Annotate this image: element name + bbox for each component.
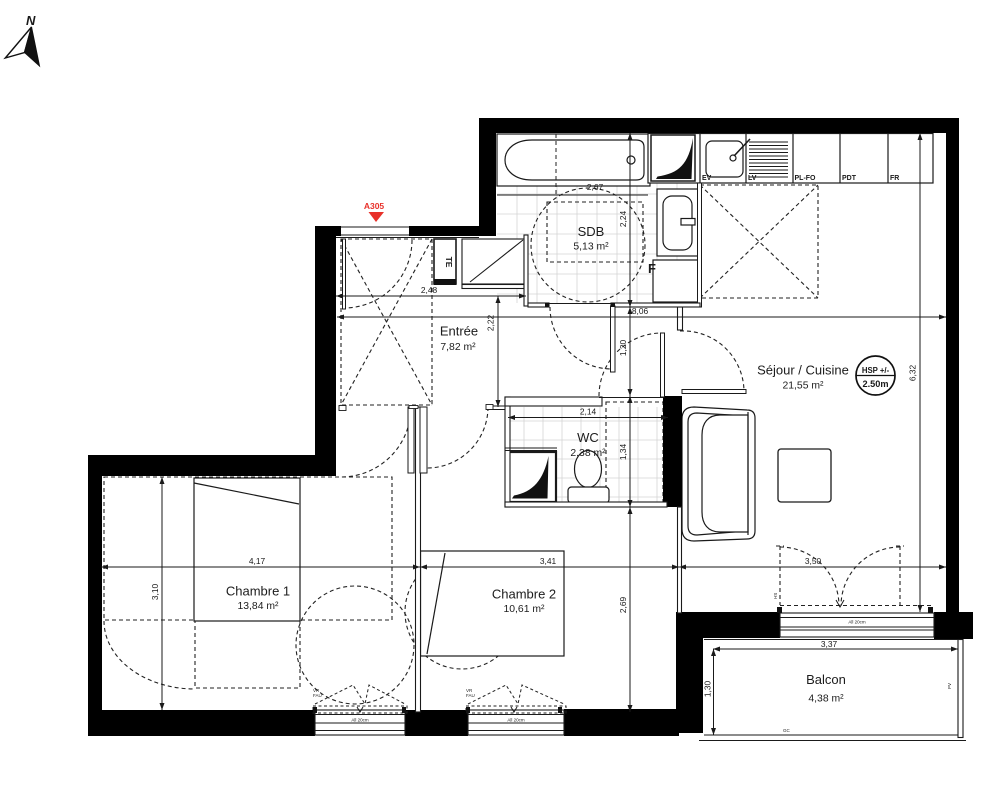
svg-text:GC: GC <box>783 728 791 733</box>
svg-text:Chambre 2: Chambre 2 <box>492 587 556 602</box>
svg-text:3,41: 3,41 <box>540 556 557 566</box>
svg-text:Séjour / Cuisine: Séjour / Cuisine <box>757 363 849 378</box>
svg-text:PL-FO: PL-FO <box>795 175 817 182</box>
svg-text:Balcon: Balcon <box>806 672 846 687</box>
svg-text:1,20: 1,20 <box>618 340 628 357</box>
svg-text:2,48: 2,48 <box>421 285 438 295</box>
svg-text:1,34: 1,34 <box>618 444 628 461</box>
svg-text:Chambre 1: Chambre 1 <box>226 584 290 599</box>
svg-text:LV: LV <box>748 175 757 182</box>
svg-text:HSP +/-: HSP +/- <box>862 366 890 375</box>
svg-text:6,32: 6,32 <box>908 365 918 382</box>
svg-text:2,38 m²: 2,38 m² <box>570 448 606 459</box>
svg-text:2,24: 2,24 <box>618 211 628 228</box>
svg-text:FAU: FAU <box>466 693 475 698</box>
svg-text:21,55 m²: 21,55 m² <box>782 381 824 392</box>
svg-text:2.50m: 2.50m <box>862 379 888 389</box>
svg-text:3,37: 3,37 <box>821 639 838 649</box>
svg-text:10,61 m²: 10,61 m² <box>503 604 545 615</box>
svg-text:4,38 m²: 4,38 m² <box>808 694 844 705</box>
svg-text:2,14: 2,14 <box>580 407 597 417</box>
svg-text:2,67: 2,67 <box>587 182 604 192</box>
svg-text:4,17: 4,17 <box>249 556 266 566</box>
svg-text:F: F <box>648 261 656 276</box>
svg-text:2,22: 2,22 <box>486 315 496 332</box>
svg-text:N: N <box>26 13 36 28</box>
svg-text:PDT: PDT <box>842 175 857 182</box>
svg-text:SDB: SDB <box>578 224 605 239</box>
svg-text:TE: TE <box>444 257 454 268</box>
svg-text:WC: WC <box>577 430 599 445</box>
svg-text:HS: HS <box>773 593 778 599</box>
svg-text:13,84 m²: 13,84 m² <box>237 601 279 612</box>
svg-text:All 20cm: All 20cm <box>848 620 866 625</box>
svg-text:5,13 m²: 5,13 m² <box>573 242 609 253</box>
svg-text:7,82 m²: 7,82 m² <box>440 342 476 353</box>
svg-text:FAU: FAU <box>313 693 322 698</box>
svg-text:1,30: 1,30 <box>703 681 713 698</box>
svg-text:FR: FR <box>890 175 899 182</box>
svg-text:A305: A305 <box>364 201 385 211</box>
svg-text:3,50: 3,50 <box>805 556 822 566</box>
svg-text:2,69: 2,69 <box>618 597 628 614</box>
svg-text:All 20cm: All 20cm <box>351 718 369 723</box>
svg-text:3,10: 3,10 <box>150 584 160 601</box>
svg-text:PV: PV <box>947 683 952 689</box>
svg-text:8,06: 8,06 <box>632 306 649 316</box>
svg-text:Entrée: Entrée <box>440 324 478 339</box>
svg-text:All 20cm: All 20cm <box>507 718 525 723</box>
svg-text:EV: EV <box>702 175 712 182</box>
